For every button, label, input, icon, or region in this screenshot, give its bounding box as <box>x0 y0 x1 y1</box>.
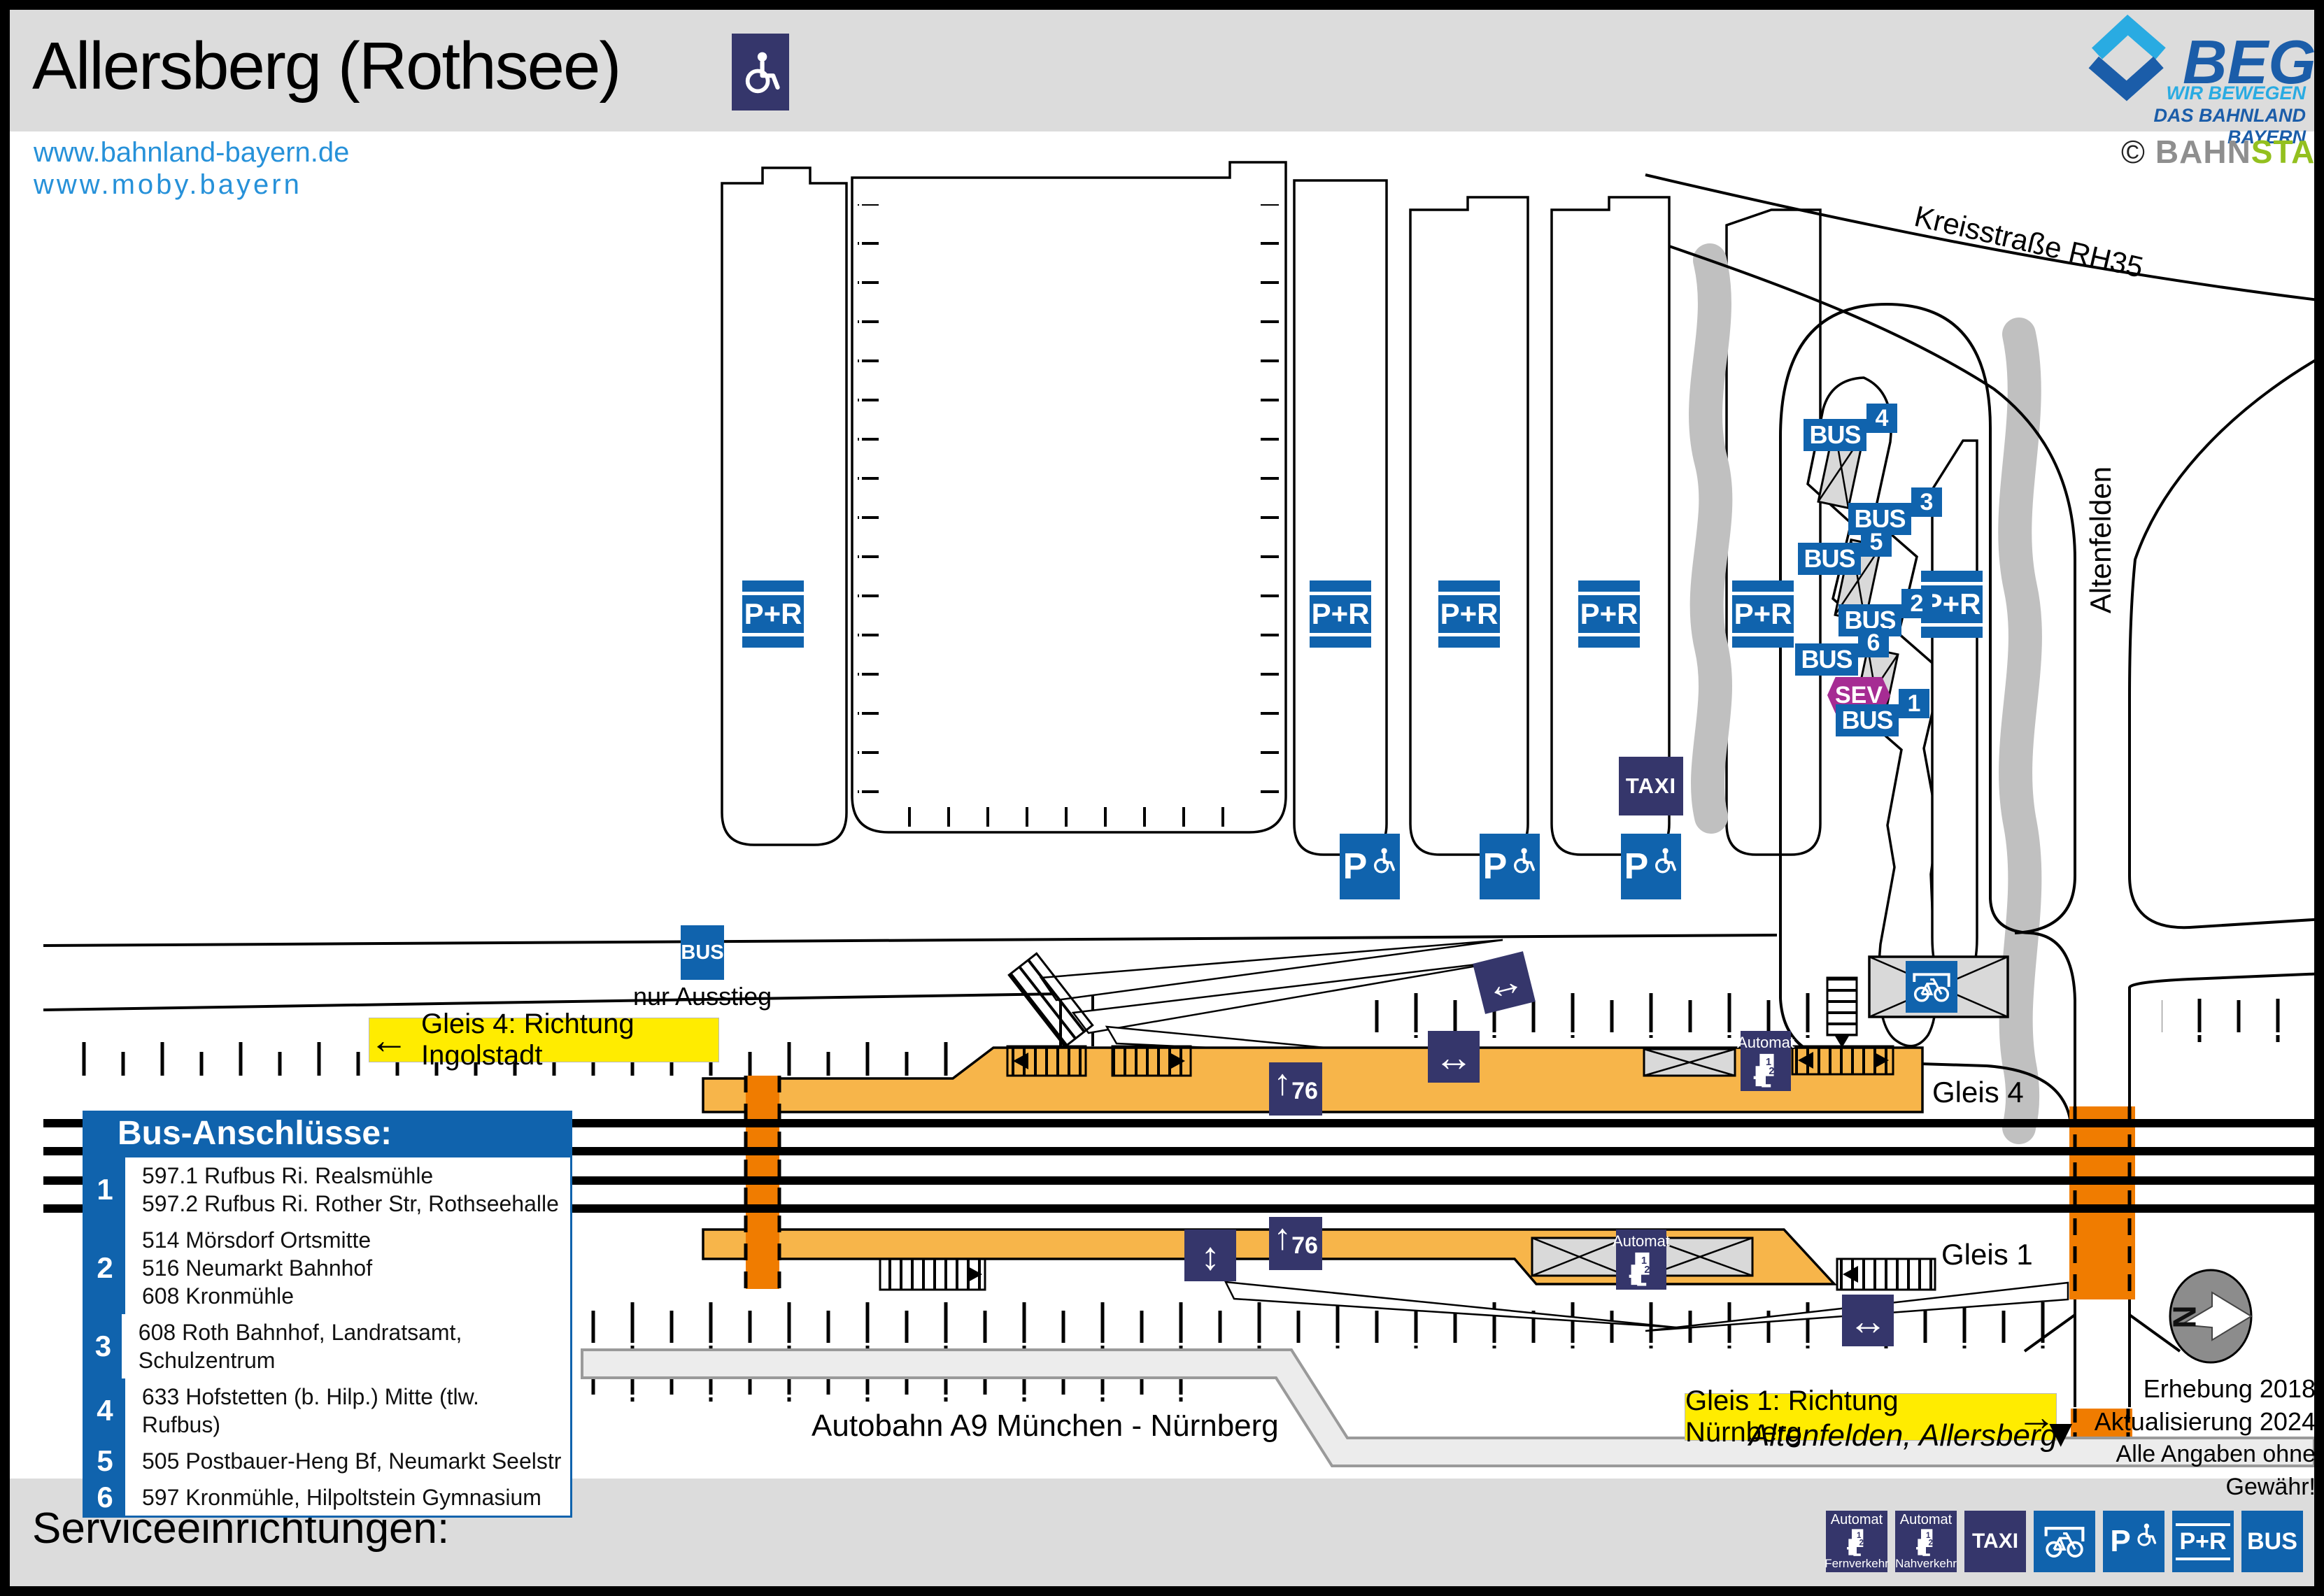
footer-icon-automat-nahverkehr: Automat Nahverkehr <box>1895 1511 1957 1572</box>
beg-tagline-1: WIR BEWEGEN <box>2096 83 2306 104</box>
legend-number: 1 <box>85 1157 125 1222</box>
altenfelden-allersberg-label: Altenfelden, Allersberg <box>1749 1418 2029 1453</box>
footer-icon-parking-disabled: P <box>2103 1511 2164 1572</box>
disabled-parking-sign-2: P <box>1480 834 1540 899</box>
legend-number: 5 <box>85 1443 125 1479</box>
bus-stop-1: BUS <box>1836 704 1899 736</box>
footer-icon-automat-fernverkehr: Automat Fernverkehr <box>1826 1511 1887 1572</box>
station-map-page: Allersberg (Rothsee) www.bahnland-bayern… <box>0 0 2324 1596</box>
legend-number: 3 <box>85 1314 122 1378</box>
legend-row-6: 6 597 Kronmühle, Hilpoltstein Gymnasium <box>85 1479 570 1516</box>
bus-legend: Bus-Anschlüsse: 1 597.1 Rufbus Ri. Reals… <box>83 1111 572 1518</box>
bus-stop-4-number: 4 <box>1866 404 1897 433</box>
lot-ticks-right <box>1259 204 1280 799</box>
footer-icon-bike <box>2034 1511 2095 1572</box>
road-label-altenfelden: Altenfelden <box>2084 456 2118 624</box>
ticket-machine-gleis1: Automat <box>1616 1230 1666 1290</box>
copyright-icon: © <box>2121 134 2146 170</box>
bus-stop-1-number: 1 <box>1899 689 1929 718</box>
legend-text: 597.1 Rufbus Ri. Realsmühle 597.2 Rufbus… <box>125 1157 566 1222</box>
legend-number: 2 <box>85 1222 125 1314</box>
legend-row-2: 2 514 Mörsdorf Ortsmitte 516 Neumarkt Ba… <box>85 1222 570 1314</box>
survey-note-line2: Aktualisierung 2024 <box>2022 1405 2316 1438</box>
pr-sign-5: P+R <box>1732 580 1794 648</box>
legend-row-1: 1 597.1 Rufbus Ri. Realsmühle 597.2 Rufb… <box>85 1157 570 1222</box>
bus-stop-6-number: 6 <box>1858 628 1889 657</box>
link-bahnland-bayern[interactable]: www.bahnland-bayern.de <box>34 137 349 169</box>
bus-stop-6: BUS <box>1795 643 1858 676</box>
ticket-machine-icon <box>1845 1527 1869 1557</box>
level-access-icon-4: ↕ <box>1184 1230 1236 1281</box>
autobahn-label: Autobahn A9 München - Nürnberg <box>812 1409 1203 1444</box>
page-title: Allersberg (Rothsee) <box>32 28 620 105</box>
bus-legend-title: Bus-Anschlüsse: <box>83 1111 572 1155</box>
bicycle-icon <box>1911 971 1953 1003</box>
wheelchair-icon <box>1370 847 1396 874</box>
level-access-icon-2: ↔ <box>1428 1031 1480 1083</box>
bike-parking-sign <box>1906 961 1957 1013</box>
up-arrow-icon: ↑ <box>1273 1062 1291 1103</box>
platform-height-sign-gleis1: ↑ 76 <box>1269 1217 1322 1270</box>
legend-text: 505 Postbauer-Heng Bf, Neumarkt Seelstr <box>125 1443 568 1479</box>
compass-north-label: N <box>2166 1305 2204 1328</box>
bus-stop-3-number: 3 <box>1911 487 1942 517</box>
bus-stop-5-number: 5 <box>1861 527 1892 557</box>
lot-ticks-left <box>858 204 879 799</box>
bus-stop-5: BUS <box>1798 543 1861 575</box>
platform-height-sign-gleis4: ↑ 76 <box>1269 1062 1322 1116</box>
bus-stop-4: BUS <box>1804 419 1866 451</box>
ticket-machine-icon <box>1914 1527 1938 1557</box>
wheelchair-icon <box>2134 1523 2158 1546</box>
disabled-parking-sign-3: P <box>1621 834 1681 899</box>
banner-gleis4: ← Gleis 4: Richtung Ingolstadt <box>369 1018 719 1062</box>
ticket-machine-gleis4: Automat <box>1741 1031 1791 1091</box>
bus-stop-2-number: 2 <box>1901 589 1932 618</box>
label-gleis1: Gleis 1 <box>1941 1238 2033 1271</box>
wheelchair-icon <box>1651 847 1678 874</box>
survey-note-line3: Alle Angaben ohne Gewähr! <box>2022 1438 2316 1504</box>
bus-exit-sign: BUS <box>681 925 724 980</box>
pr-sign-1: P+R <box>742 580 804 648</box>
bicycle-icon <box>2042 1524 2087 1559</box>
legend-text: 597 Kronmühle, Hilpoltstein Gymnasium <box>125 1479 548 1516</box>
survey-notes: Erhebung 2018 Aktualisierung 2024 Alle A… <box>2022 1372 2316 1504</box>
bus-exit-note: nur Ausstieg <box>633 982 772 1011</box>
pr-sign-4: P+R <box>1578 580 1640 648</box>
lot-ticks-bottom <box>890 804 1254 827</box>
footer-icon-bus: BUS <box>2241 1511 2303 1572</box>
loop-parking-strip <box>1932 441 1977 985</box>
legend-row-4: 4 633 Hofstetten (b. Hilp.) Mitte (tlw. … <box>85 1378 570 1443</box>
pr-sign-3: P+R <box>1438 580 1500 648</box>
accessibility-badge <box>732 34 789 111</box>
footer-icon-park-and-ride: P+R <box>2172 1511 2234 1572</box>
legend-row-5: 5 505 Postbauer-Heng Bf, Neumarkt Seelst… <box>85 1443 570 1479</box>
wheelchair-icon <box>739 50 782 94</box>
legend-number: 6 <box>85 1479 125 1516</box>
survey-note-line1: Erhebung 2018 <box>2022 1372 2316 1405</box>
pr-sign-2: P+R <box>1310 580 1371 648</box>
up-arrow-icon: ↑ <box>1273 1217 1291 1257</box>
taxi-sign: TAXI <box>1619 757 1683 815</box>
wheelchair-icon <box>1510 847 1536 874</box>
label-gleis4: Gleis 4 <box>1932 1076 2024 1109</box>
level-access-icon-3: ↔ <box>1842 1295 1894 1346</box>
legend-text: 514 Mörsdorf Ortsmitte 516 Neumarkt Bahn… <box>125 1222 379 1314</box>
disabled-parking-sign-1: P <box>1340 834 1400 899</box>
legend-text: 608 Roth Bahnhof, Landratsamt, Schulzent… <box>122 1314 570 1378</box>
legend-text: 633 Hofstetten (b. Hilp.) Mitte (tlw. Ru… <box>125 1378 570 1443</box>
bahnstadt-credit: ©BAHNSTADT <box>2121 133 2324 171</box>
ticket-machine-icon <box>1627 1251 1655 1287</box>
ticket-machine-icon <box>1752 1052 1780 1088</box>
link-moby-bayern[interactable]: www.moby.bayern <box>34 169 302 201</box>
legend-number: 4 <box>85 1378 125 1443</box>
footer-icon-taxi: TAXI <box>1964 1511 2026 1572</box>
legend-row-3: 3 608 Roth Bahnhof, Landratsamt, Schulze… <box>85 1314 570 1378</box>
